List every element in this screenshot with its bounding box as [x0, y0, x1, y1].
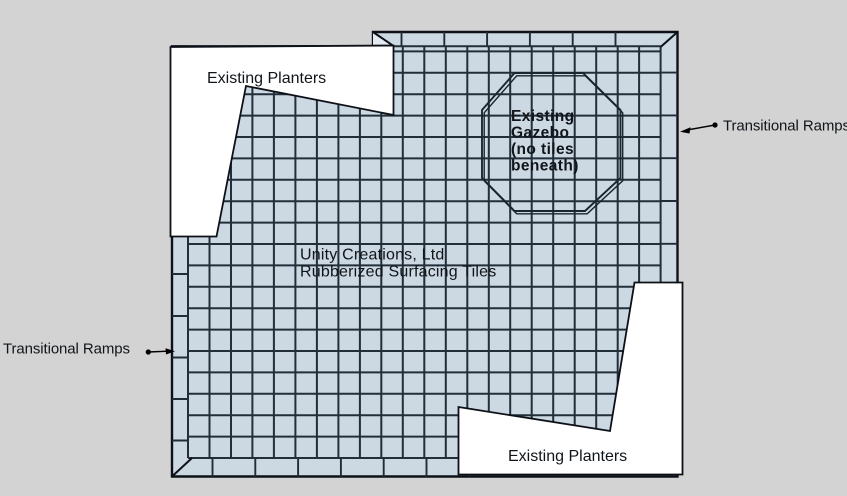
svg-text:Transitional Ramps: Transitional Ramps: [723, 117, 847, 134]
svg-text:(no tiles: (no tiles: [511, 141, 574, 158]
svg-text:Unity Creations, Ltd: Unity Creations, Ltd: [300, 247, 445, 264]
svg-text:Gazebo: Gazebo: [511, 125, 569, 142]
svg-text:Existing Planters: Existing Planters: [508, 448, 627, 465]
svg-text:Rubberized Surfacing Tiles: Rubberized Surfacing Tiles: [300, 263, 496, 280]
svg-text:beneath): beneath): [511, 158, 579, 175]
svg-text:Existing Planters: Existing Planters: [207, 70, 326, 87]
svg-text:Existing: Existing: [511, 108, 575, 125]
svg-text:Transitional Ramps: Transitional Ramps: [3, 341, 130, 358]
